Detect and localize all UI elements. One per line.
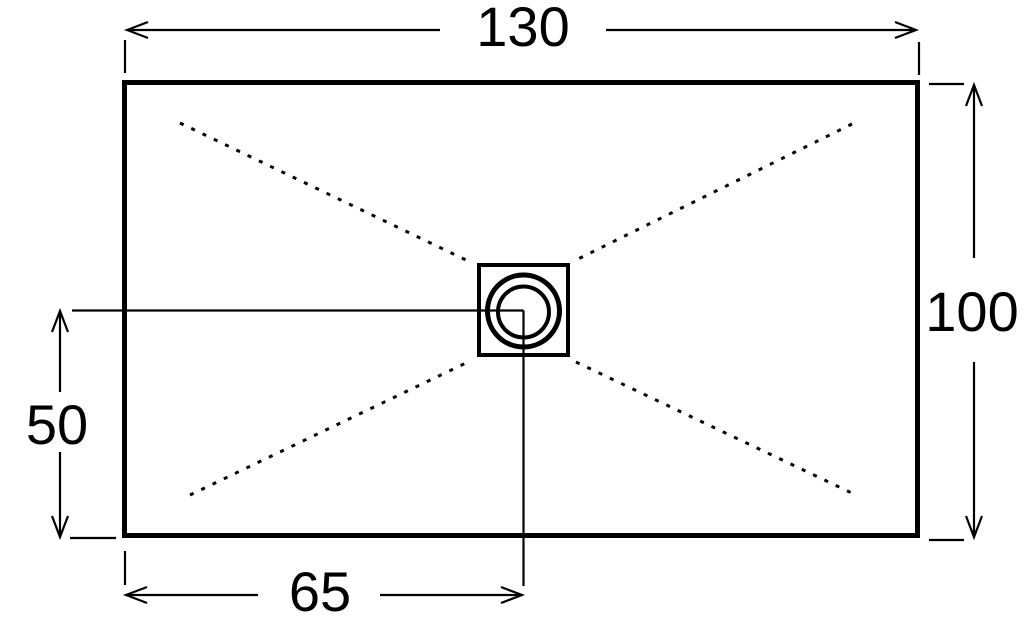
dimension-label-offset-bottom: 50: [26, 393, 88, 456]
dimension-drain-offset-bottom: 50: [26, 311, 116, 538]
shower-tray-technical-drawing: 130 100 50 65: [0, 0, 1024, 618]
dimension-overall-width: 130: [125, 0, 919, 75]
tray-outline: [125, 83, 918, 536]
dimension-label-width: 130: [476, 0, 569, 58]
dimension-overall-depth: 100: [925, 84, 1018, 540]
dimension-drain-offset-left: 65: [125, 551, 522, 618]
dimension-label-depth: 100: [925, 280, 1018, 343]
dimension-label-offset-left: 65: [289, 560, 351, 618]
drawing-canvas: 130 100 50 65: [0, 0, 1024, 618]
